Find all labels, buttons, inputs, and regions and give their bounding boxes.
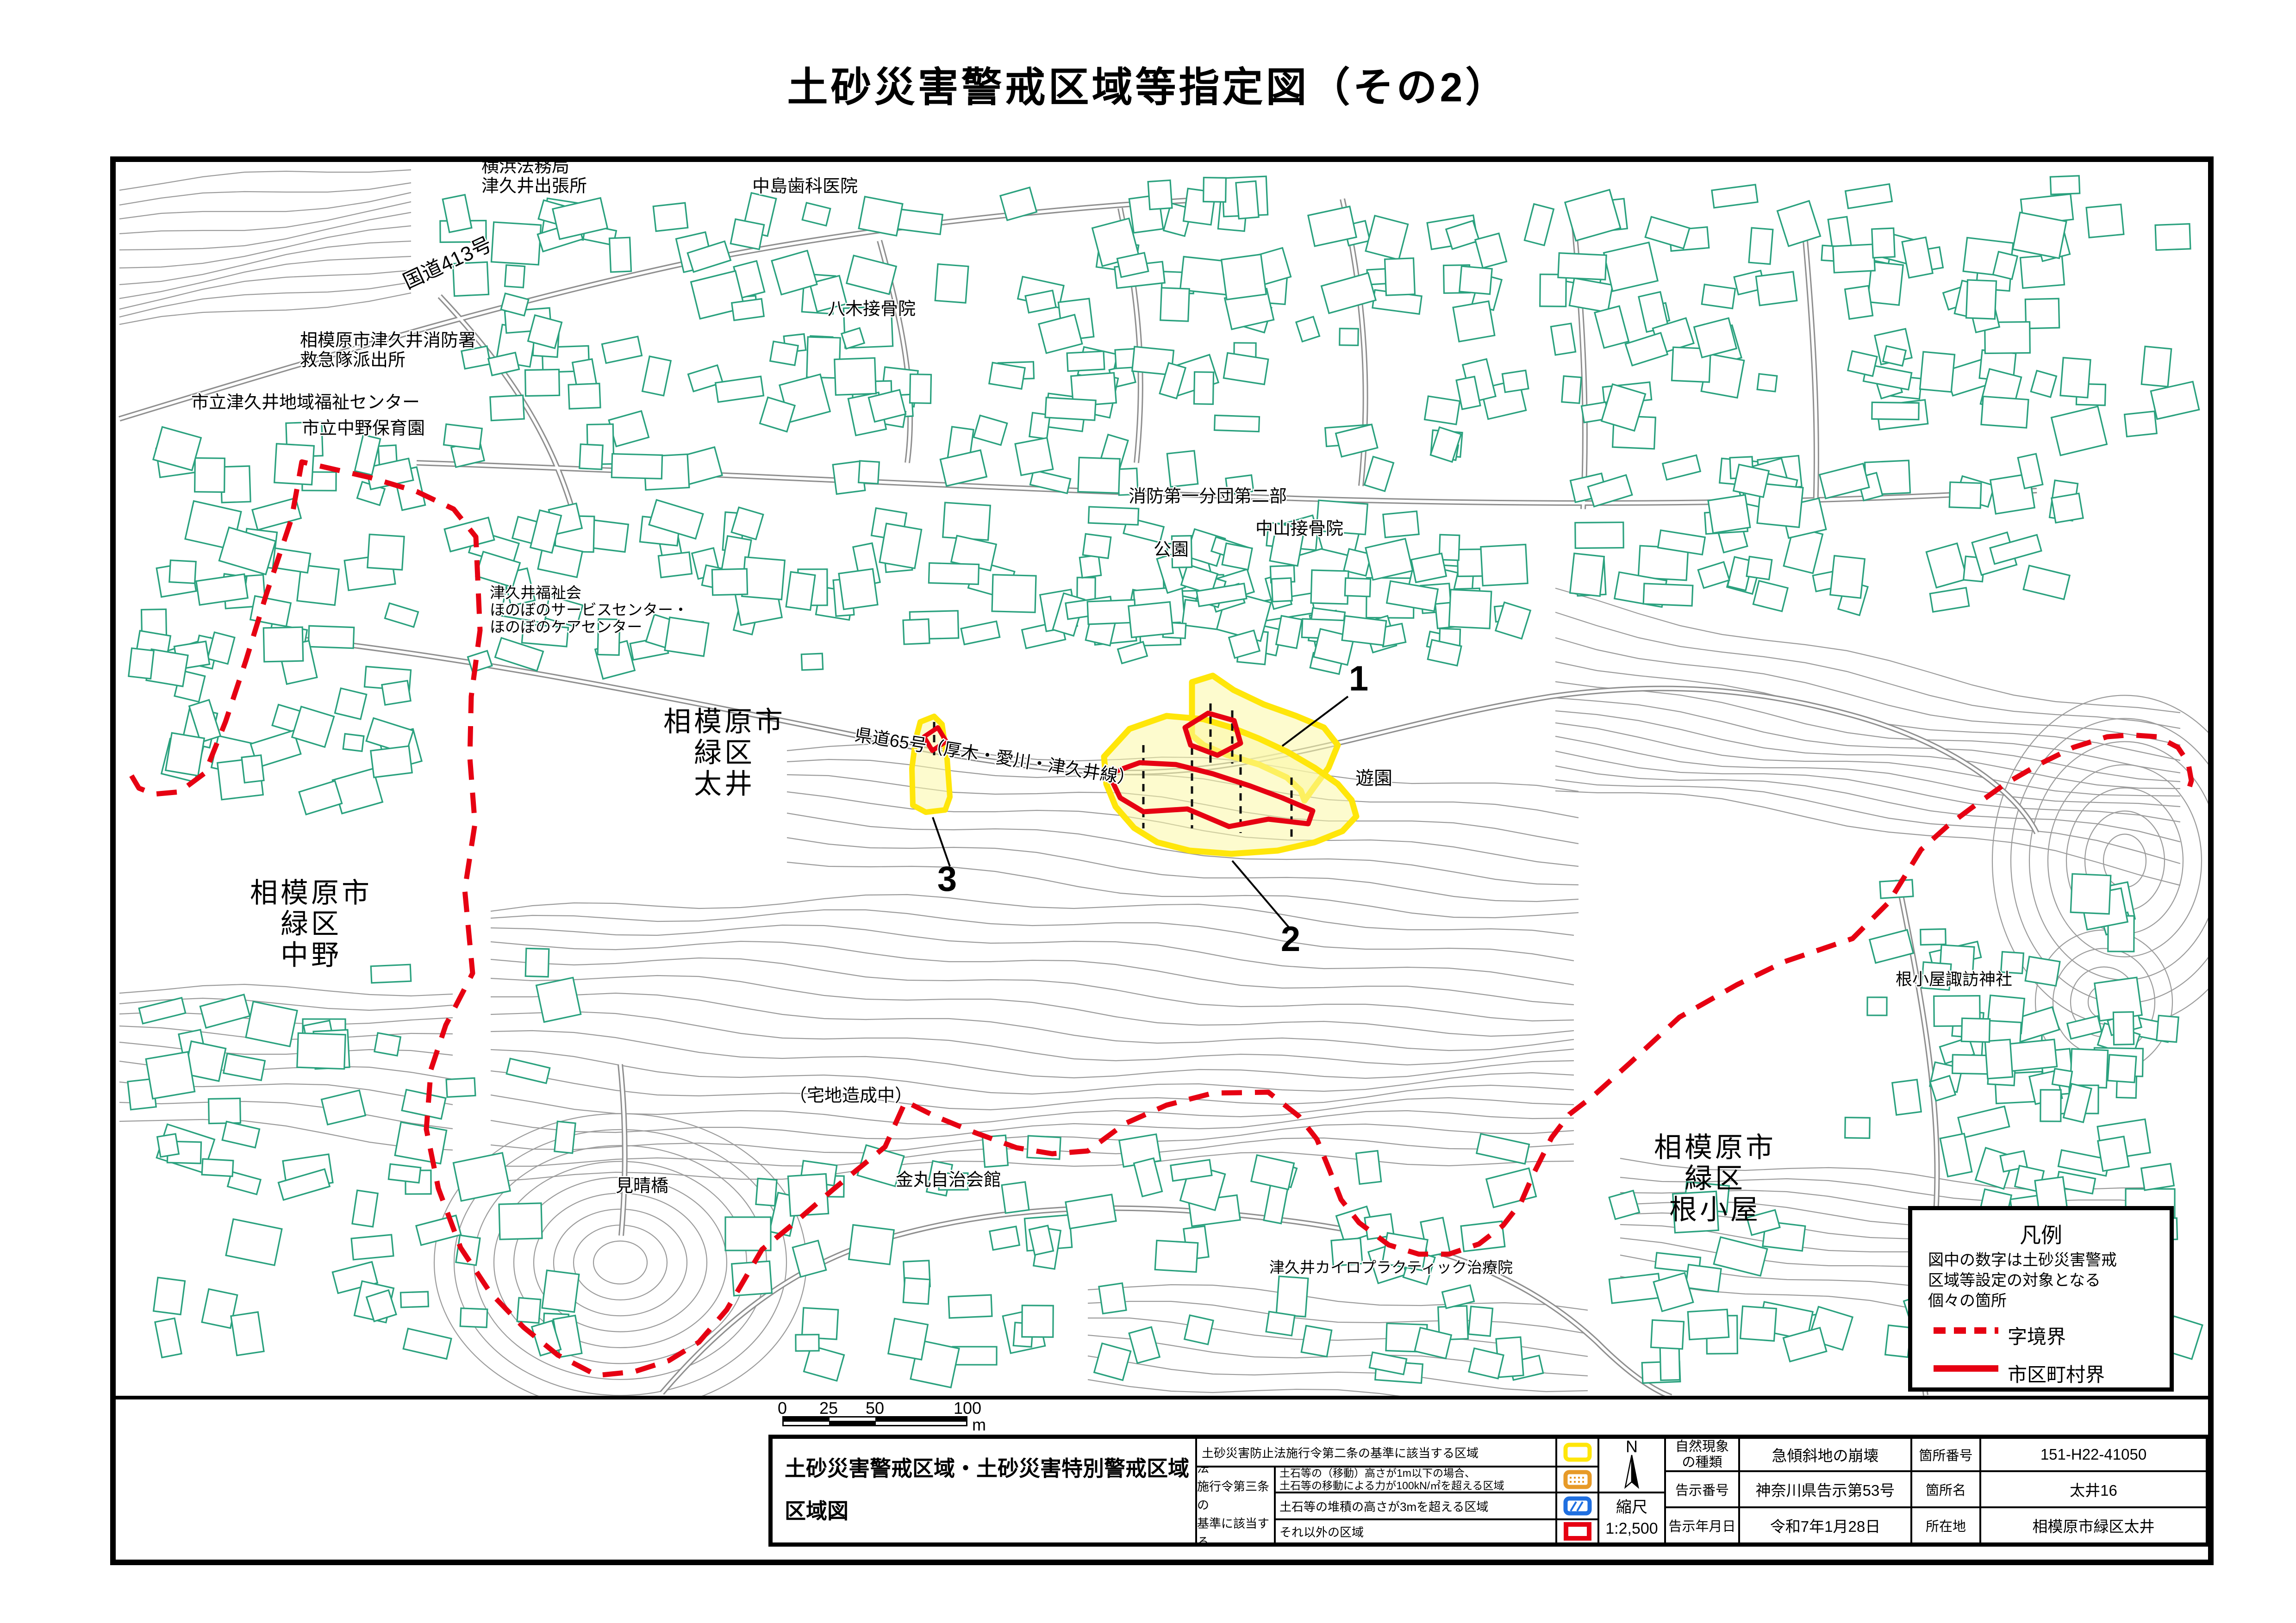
building [154,1277,185,1314]
building [499,1203,542,1239]
building [1022,1306,1053,1337]
building [1702,285,1735,309]
building [2052,493,2083,522]
building [1167,451,1198,487]
building [948,1295,992,1318]
building [231,1312,264,1356]
scale-cell: 縮尺 1:2,500 [1597,1492,1666,1544]
building [2141,1163,2174,1190]
building [835,358,876,395]
building [1757,374,1777,392]
place-label: 金丸自治会館 [896,1170,1001,1190]
building [371,964,411,983]
page: 土砂災害警戒区域等指定図（その2） 123横浜法務局津久井出張所中島歯科医院国道… [0,0,2296,1623]
building [801,653,823,670]
building [1749,228,1773,264]
building [1892,1080,1922,1115]
building [374,1033,400,1056]
building [1002,1182,1029,1213]
building [1741,1306,1777,1341]
building [2098,1137,2129,1171]
building [2125,411,2157,437]
criteria-row2-line2: 土石等の移動による力が100kN/㎡を超える区域 [1279,1480,1504,1492]
meta-value-location: 相模原市緑区太井 [1979,1506,2208,1544]
building [352,1190,378,1227]
swatch-yellow-cell [1555,1437,1599,1468]
building [658,552,692,578]
building [525,369,560,396]
building [1872,228,1895,258]
building [1845,1118,1870,1138]
building [1660,1348,1680,1380]
legend-note: 図中の数字は土砂災害警戒 区域等設定の対象となる 個々の箇所 [1928,1250,2117,1311]
building [1078,458,1120,493]
legend-note-line2: 区域等設定の対象となる [1928,1270,2117,1291]
building [2071,874,2111,914]
building [2040,1090,2061,1121]
building [1160,288,1190,321]
swatch-red-cell [1555,1518,1599,1544]
table-title-line2: 区域図 [785,1490,1189,1532]
building [371,746,412,777]
place-label: 市立津久井地域福祉センター [191,393,420,412]
building [1867,997,1887,1015]
building [1756,272,1797,305]
building [888,1318,928,1360]
building [2025,957,2060,986]
building [2070,1049,2108,1088]
building [786,572,815,610]
building [1449,590,1491,628]
building [1383,511,1419,538]
building [444,424,482,449]
building [1461,1221,1505,1251]
building [2006,1039,2057,1071]
law3-line3: 基準に該当する [1197,1514,1274,1544]
map-canvas: 123横浜法務局津久井出張所中島歯科医院国道413号八木接骨院相模原市津久井消防… [116,162,2208,1560]
place-label: 遊園 [1355,768,1392,789]
building [555,1121,575,1153]
north-cell: N [1597,1437,1666,1493]
building [202,1159,233,1176]
place-label: 根小屋諏訪神社 [1896,970,2012,989]
building [1222,255,1267,300]
criteria-row3-cell: 土石等の堆積の高さが3mを超える区域 [1274,1492,1557,1520]
building [1276,1276,1308,1317]
meta-label-notice-number: 告示番号 [1664,1470,1740,1508]
solid-line-sample [1934,1365,1998,1372]
building [568,384,600,409]
law3-line2: 施行令第三条の [1197,1477,1274,1514]
building [1148,180,1172,209]
building [368,535,404,570]
building [275,444,314,485]
criteria-row1-cell: 土砂災害防止法施行令第二条の基準に該当する区域 [1195,1437,1557,1468]
place-label: 消防第一分団第二部 [1129,487,1287,506]
building [580,444,603,469]
building [505,265,525,288]
building [1099,1283,1126,1314]
building [1833,244,1875,273]
dashed-line-sample [1934,1327,1998,1334]
building [517,1298,541,1323]
meta-label-site-number: 箇所番号 [1910,1437,1981,1472]
building [1502,370,1528,392]
building [1845,286,1873,319]
north-arrow-icon: N [1616,1439,1648,1491]
scale-label: 縮尺 [1605,1497,1658,1518]
orange-dotted-swatch [1563,1470,1592,1489]
building [1272,578,1292,602]
scale-value: 1:2,500 [1605,1518,1658,1539]
building [1342,616,1386,645]
building [1981,397,2028,428]
building [1311,570,1348,604]
building [2157,1015,2178,1042]
building [1961,1018,1990,1042]
place-label: 中山接骨院 [1255,519,1343,539]
criteria-row2-cell: 土石等の（移動）高さが1m以下の場合、 土石等の移動による力が100kN/㎡を超… [1274,1466,1557,1493]
building [730,219,764,249]
building [1708,495,1750,533]
scale-tick-0: 0 [778,1399,787,1418]
building [935,264,968,303]
building [1087,600,1136,624]
scale-bar-graphic [782,1416,967,1426]
building [929,563,979,585]
building [1562,376,1581,404]
place-label: 見晴橋 [616,1176,668,1196]
building [796,1335,819,1351]
meta-label-notice-date: 告示年月日 [1664,1506,1740,1544]
table-title-line1: 土砂災害警戒区域・土砂災害特別警戒区域 [785,1447,1189,1490]
place-label: 中島歯科医院 [752,177,858,196]
red-outline-swatch [1563,1522,1592,1541]
building [1194,372,1213,404]
building [611,454,662,479]
place-label: 津久井カイロプラクティック治療院 [1269,1259,1513,1276]
building [1651,1320,1684,1349]
building [1921,929,1946,945]
building [1223,353,1268,385]
building [2086,205,2124,238]
building [742,557,785,600]
building [460,1308,487,1327]
building [1301,1325,1331,1356]
scale-bar: 0 25 50 100 m [776,1399,989,1432]
building [665,617,709,656]
scale-unit: m [972,1415,986,1435]
law3-label-cell: 土砂災害防止法 施行令第三条の 基準に該当する 区域 [1195,1466,1276,1544]
scale-tick-25: 25 [819,1399,838,1418]
building [169,560,196,584]
building [1643,584,1693,606]
building [1609,1274,1661,1303]
legend-note-line1: 図中の数字は土砂災害警戒 [1928,1250,2117,1270]
building [903,1278,930,1304]
building [1356,1151,1381,1184]
building [2060,358,2090,398]
building [1985,1039,2013,1079]
building [388,1164,420,1182]
meta-value-notice-number: 神奈川県告示第53号 [1738,1470,1912,1508]
scale-tick-50: 50 [866,1399,884,1418]
building [490,395,524,421]
building [542,1270,579,1312]
criteria-row4-cell: それ以外の区域 [1274,1518,1557,1544]
building [989,362,1025,389]
building [1540,274,1566,306]
building [1747,557,1772,580]
building [382,681,411,705]
building [1569,278,1612,312]
building [1214,415,1259,431]
building [1453,301,1495,342]
building [653,203,688,231]
building [1558,253,1606,280]
building [2155,224,2190,250]
meta-label-phenomenon: 自然現象の種類 [1664,1437,1740,1472]
legend-box: 凡例 図中の数字は土砂災害警戒 区域等設定の対象となる 個々の箇所 字境界 市区… [1908,1206,2174,1392]
building [1425,396,1460,424]
yellow-zone-swatch [1563,1443,1592,1462]
building [859,197,903,236]
law3-line1: 土砂災害防止法 [1197,1466,1274,1477]
building [903,619,930,644]
building [1079,555,1101,578]
building [1734,465,1769,497]
building [446,1078,475,1097]
swatch-blue-cell [1555,1492,1599,1520]
building [756,1178,777,1206]
building [2141,347,2171,387]
building [2113,1012,2134,1045]
building [1340,329,1359,346]
swatch-orange-cell [1555,1466,1599,1493]
zone-number-2: 2 [1281,920,1300,959]
zone-number-1: 1 [1349,659,1368,698]
building [712,569,747,595]
building [1345,578,1370,597]
building [1575,522,1623,548]
page-title: 土砂災害警戒区域等指定図（その2） [0,55,2296,113]
building [209,1098,241,1123]
legend-row-solid: 市区町村界 [1912,1359,2170,1378]
building [990,1226,1019,1250]
place-label: （宅地造成中） [789,1086,912,1106]
building [732,299,764,320]
building [525,948,549,976]
building [2050,176,2079,194]
building [1129,602,1173,638]
building [263,627,303,662]
meta-label-location: 所在地 [1910,1506,1981,1544]
zone-number-3: 3 [937,859,957,899]
building [1883,346,1906,366]
building [1830,556,1865,598]
north-letter: N [1626,1439,1638,1456]
building [335,688,366,719]
building [839,569,878,609]
place-label: 公園 [1154,540,1189,560]
info-table: 土砂災害警戒区域・土砂災害特別警戒区域 区域図 土砂災害防止法施行令第二条の基準… [768,1435,2209,1547]
building [859,461,880,484]
building [1083,534,1111,559]
meta-value-notice-date: 令和7年1月28日 [1738,1506,1912,1544]
meta-value-site-name: 太井16 [1979,1470,2208,1508]
place-label: 八木接骨院 [828,299,916,319]
legend-dashed-label: 字境界 [2008,1321,2066,1349]
criteria-row2-line1: 土石等の（移動）高さが1m以下の場合、 [1279,1467,1504,1480]
building [1481,545,1528,586]
building [1920,352,1955,392]
building [166,733,205,776]
building [491,222,541,265]
building [1155,1240,1198,1272]
building [1088,507,1138,525]
building [2013,212,2066,258]
building [1688,1309,1729,1339]
building [1872,402,1919,419]
building [1067,351,1104,371]
building [2108,1055,2136,1082]
building [242,755,264,783]
meta-value-site-number: 151-H22-41050 [1979,1437,2208,1472]
building [195,458,225,492]
legend-title: 凡例 [1912,1219,2170,1249]
building [880,523,921,568]
building [610,237,631,272]
building [400,1292,428,1307]
building [982,1135,1008,1167]
building [1885,1325,1911,1357]
building [343,734,364,752]
table-title-cell: 土砂災害警戒区域・土砂災害特別警戒区域 区域図 [771,1437,1197,1544]
building [1468,1306,1492,1336]
building [770,342,799,366]
building [1276,616,1302,648]
building [308,626,354,648]
place-label: 市立中野保育園 [302,419,425,438]
blue-hatched-swatch [1563,1496,1592,1516]
building [1185,1315,1213,1344]
building [297,1033,346,1069]
building [992,575,1036,612]
building [2053,1069,2072,1087]
building [1222,543,1252,570]
building [537,977,581,1022]
building [1570,553,1604,596]
building [1966,280,1996,319]
building [1266,1312,1295,1336]
building [129,648,154,679]
building [1685,1265,1721,1292]
building [1015,438,1053,475]
building [943,503,991,540]
building [2035,1177,2067,1211]
building [1236,181,1259,218]
building [1551,323,1575,355]
building [1385,258,1415,295]
building [1460,266,1492,294]
building [146,1052,194,1099]
building [1045,398,1096,420]
building [351,1235,393,1260]
building [2025,298,2059,329]
building [1204,178,1226,202]
legend-row-dashed: 字境界 [1912,1321,2170,1340]
legend-solid-label: 市区町村界 [2008,1359,2105,1387]
building [157,1134,179,1157]
meta-label-site-name: 箇所名 [1910,1470,1981,1508]
building [849,1225,894,1264]
building [910,374,931,404]
legend-note-line3: 個々の箇所 [1928,1291,2117,1311]
meta-value-phenomenon: 急傾斜地の崩壊 [1738,1437,1912,1472]
building [1949,482,1981,508]
building [395,1122,446,1164]
